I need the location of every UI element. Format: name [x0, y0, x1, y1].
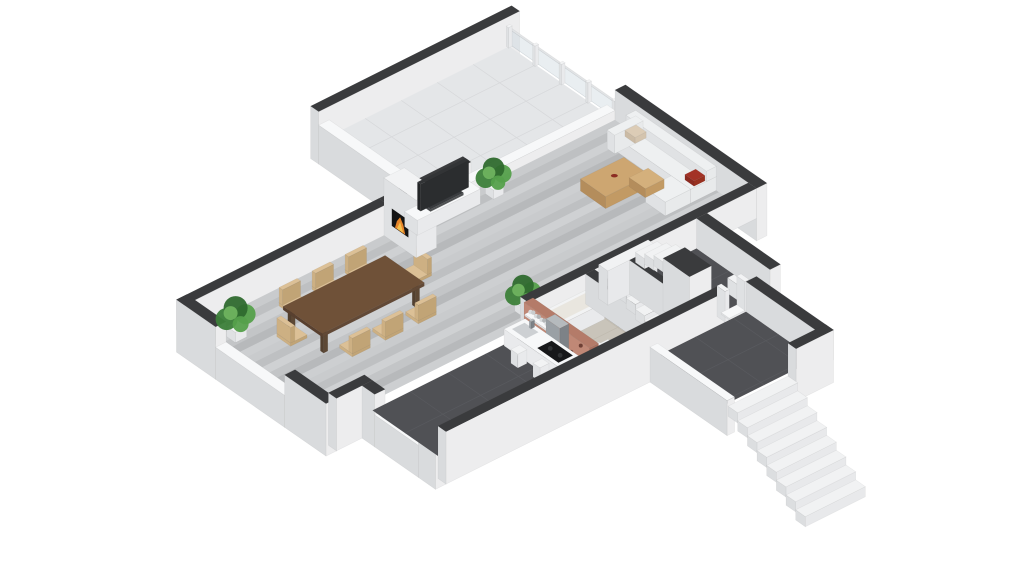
glassware	[531, 310, 535, 314]
8	[728, 376, 865, 527]
kitchen-faucet	[529, 319, 534, 329]
burner	[548, 346, 553, 351]
wall-knob	[579, 344, 583, 348]
decor-bowl	[611, 174, 618, 177]
floorplan-render	[0, 0, 1011, 570]
burner	[558, 353, 563, 358]
floorplan-page	[0, 0, 1011, 570]
kitchen-stool	[511, 345, 527, 368]
